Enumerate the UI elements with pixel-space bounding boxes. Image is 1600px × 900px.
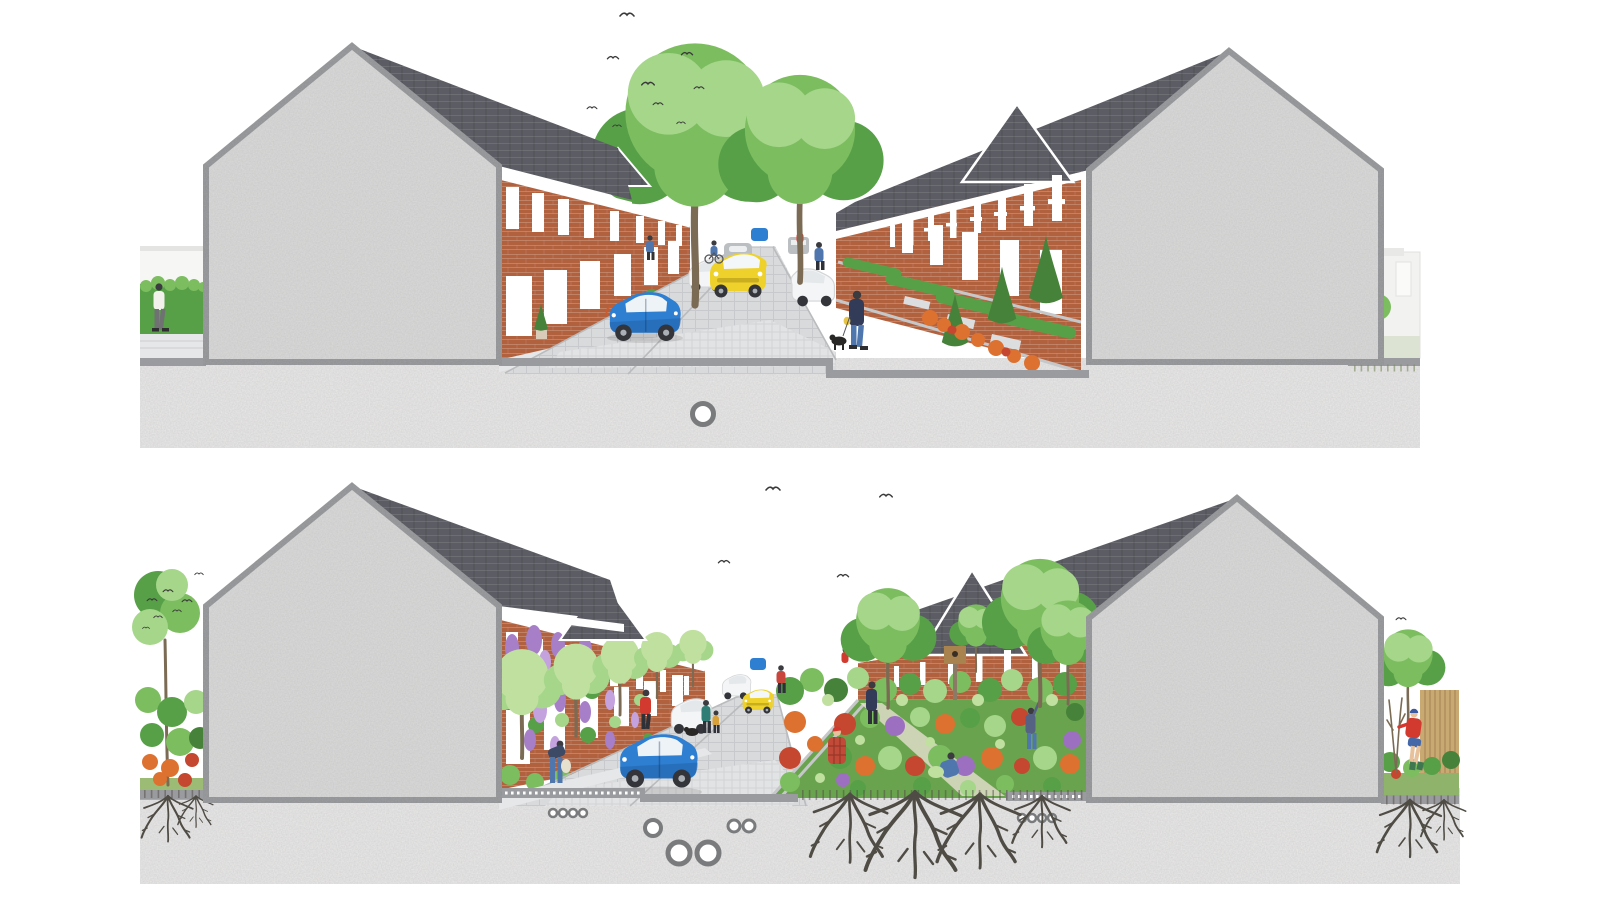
small-blue-car xyxy=(751,228,768,241)
upper-left-vignette xyxy=(140,246,208,358)
small-blue-car xyxy=(750,658,766,670)
dog xyxy=(830,335,847,351)
person-blue xyxy=(815,242,825,270)
service-pipe xyxy=(693,404,714,425)
lower-left-vignette xyxy=(132,569,211,800)
illustration-stage xyxy=(0,0,1600,900)
upper-panel xyxy=(140,13,1420,448)
lower-right-vignette xyxy=(1371,618,1460,797)
street-sections-illustration xyxy=(0,0,1600,900)
lower-panel xyxy=(132,486,1466,884)
